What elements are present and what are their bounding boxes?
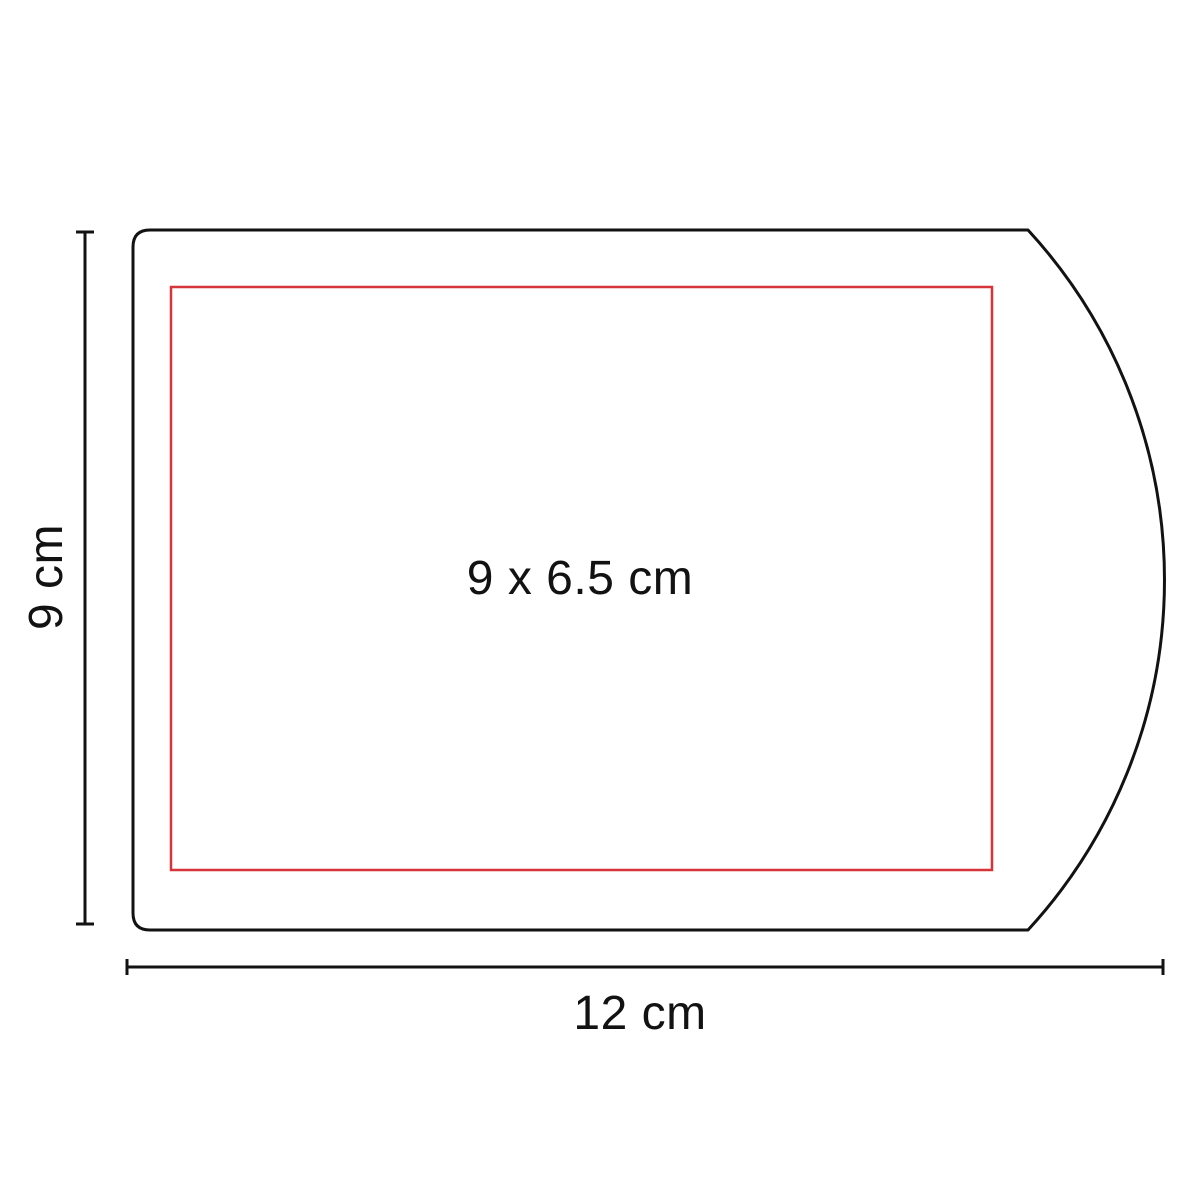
height-dimension-line <box>76 232 94 924</box>
height-dimension-label: 9 cm <box>23 524 71 630</box>
width-dimension-line <box>127 959 1163 975</box>
width-dimension-label: 12 cm <box>573 990 706 1038</box>
product-dimension-diagram: 9 cm 9 x 6.5 cm 12 cm <box>0 0 1200 1200</box>
print-area-label: 9 x 6.5 cm <box>467 555 693 603</box>
